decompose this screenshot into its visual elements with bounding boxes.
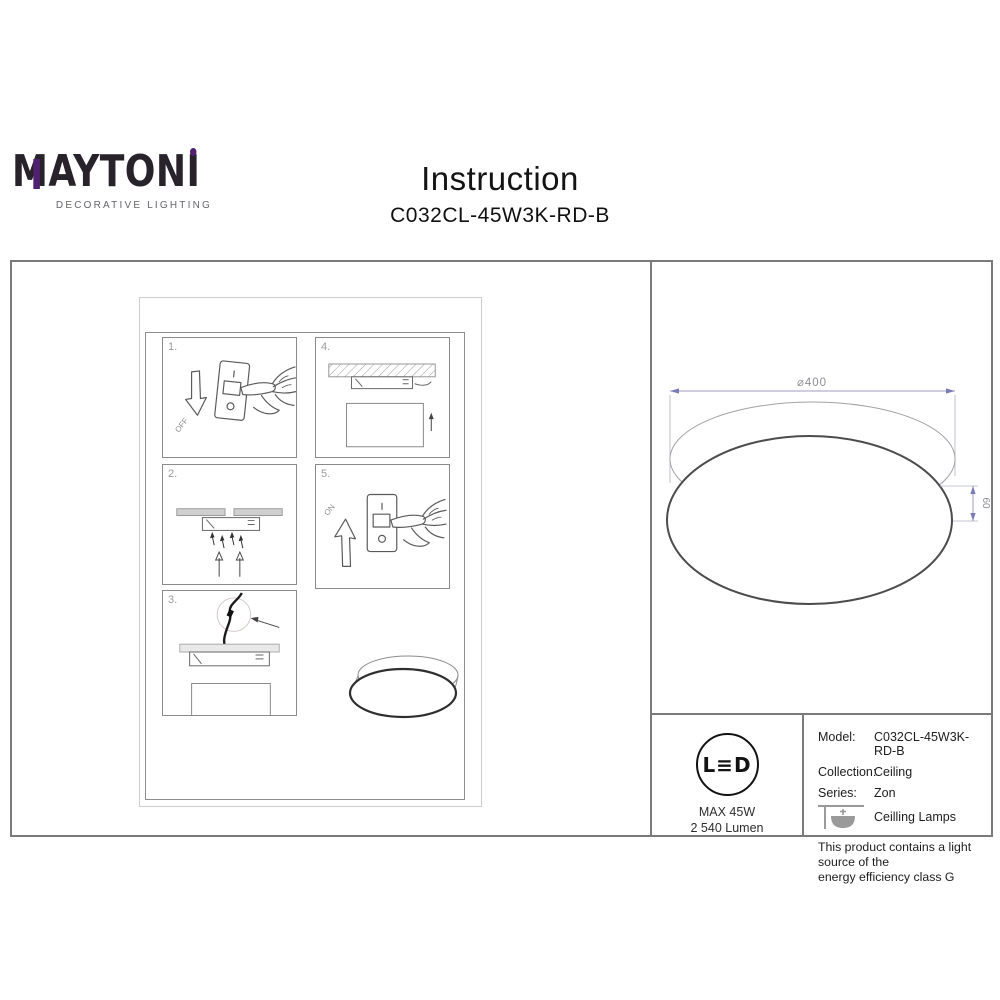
energy-note-line2: energy efficiency class G bbox=[818, 870, 990, 885]
instruction-sheet: MAYTONI DECORATIVE LIGHTING Instruction … bbox=[0, 0, 1000, 1000]
info-label: Model: bbox=[818, 730, 874, 758]
ceiling-plate bbox=[180, 644, 279, 652]
step-panel-attach-lamp: 4. bbox=[315, 337, 450, 458]
info-row-model: Model: C032CL-45W3K-RD-B bbox=[818, 730, 990, 758]
off-label: OFF bbox=[173, 416, 190, 434]
step-panel-mount-bracket: 2. bbox=[162, 464, 297, 585]
dim-arrow-right bbox=[946, 388, 955, 393]
info-value: Zon bbox=[874, 786, 896, 800]
height-label: 60 bbox=[980, 497, 991, 509]
ceiling-bar-left bbox=[177, 509, 225, 516]
mounting-plate-icon bbox=[190, 652, 270, 666]
steps-panels-box: 1. bbox=[145, 332, 465, 800]
down-arrow-icon bbox=[186, 371, 207, 415]
content-frame: 1. bbox=[10, 260, 993, 837]
technical-drawing: ⌀400 60 bbox=[652, 264, 993, 712]
small-up-arrows-icon bbox=[210, 532, 243, 548]
switch-off-drawing: OFF bbox=[163, 338, 296, 457]
info-row-collection: Collection: Ceiling bbox=[818, 765, 990, 779]
energy-note: This product contains a light source of … bbox=[818, 840, 990, 885]
lamp-perspective-drawing bbox=[346, 645, 464, 737]
series-caption: Ceilling Lamps bbox=[874, 810, 956, 824]
hand-icon bbox=[391, 499, 446, 546]
mounting-plate-icon bbox=[351, 377, 431, 389]
large-up-arrows-icon bbox=[216, 552, 244, 577]
cell-separator bbox=[802, 715, 804, 837]
info-value: Ceiling bbox=[874, 765, 912, 779]
series-icon-row: Ceilling Lamps bbox=[818, 804, 990, 830]
step-panel-connect-wires: 3. bbox=[162, 590, 297, 716]
dim-arrow-left bbox=[670, 388, 679, 393]
page-title: Instruction bbox=[0, 160, 1000, 198]
model-number: C032CL-45W3K-RD-B bbox=[0, 204, 1000, 228]
attach-lamp-drawing bbox=[316, 338, 449, 457]
switch-on-drawing: ON bbox=[316, 465, 449, 588]
lamp-bottom-rim bbox=[350, 669, 456, 717]
lamp-body bbox=[347, 403, 424, 446]
up-arrow-icon bbox=[335, 519, 356, 566]
led-spec-cell: L≡D MAX 45W 2 540 Lumen bbox=[652, 716, 802, 839]
led-badge-icon: L≡D bbox=[696, 733, 759, 796]
pointer-arrow-icon bbox=[251, 617, 280, 628]
info-label: Series: bbox=[818, 786, 874, 800]
steps-outer-box: 1. bbox=[139, 297, 482, 807]
step-panel-switch-on: 5. bbox=[315, 464, 450, 589]
step-panel-switch-off: 1. bbox=[162, 337, 297, 458]
energy-note-line1: This product contains a light source of … bbox=[818, 840, 990, 870]
step-number: 4. bbox=[321, 341, 330, 353]
dim-arrow-down bbox=[970, 513, 975, 521]
luminous-flux: 2 540 Lumen bbox=[691, 821, 764, 835]
lamp-front-rim bbox=[667, 436, 952, 604]
product-info-cell: Model: C032CL-45W3K-RD-B Collection: Cei… bbox=[818, 730, 990, 885]
step-number: 5. bbox=[321, 468, 330, 480]
horizontal-separator bbox=[652, 713, 991, 715]
on-label: ON bbox=[322, 502, 337, 517]
ceiling-bar-right bbox=[234, 509, 282, 516]
ceiling-lamp-icon bbox=[818, 804, 864, 830]
step-number: 1. bbox=[168, 341, 177, 353]
mounting-plate-icon bbox=[202, 518, 259, 531]
wire-connector-icon bbox=[227, 609, 234, 617]
connect-wires-drawing bbox=[163, 591, 296, 715]
dim-arrow-up bbox=[970, 486, 975, 494]
lamp-body bbox=[192, 684, 271, 715]
diameter-label: ⌀400 bbox=[797, 377, 827, 389]
small-up-arrow-icon bbox=[429, 413, 434, 431]
led-badge-text: L≡D bbox=[702, 753, 751, 777]
info-label: Collection: bbox=[818, 765, 874, 779]
step-number: 3. bbox=[168, 594, 177, 606]
step-number: 2. bbox=[168, 468, 177, 480]
header: Instruction C032CL-45W3K-RD-B bbox=[0, 160, 1000, 228]
info-row-series: Series: Zon bbox=[818, 786, 990, 800]
info-value: C032CL-45W3K-RD-B bbox=[874, 730, 990, 758]
mount-bracket-drawing bbox=[163, 465, 296, 584]
ceiling-hatched bbox=[329, 364, 435, 377]
max-power: MAX 45W bbox=[699, 805, 755, 819]
